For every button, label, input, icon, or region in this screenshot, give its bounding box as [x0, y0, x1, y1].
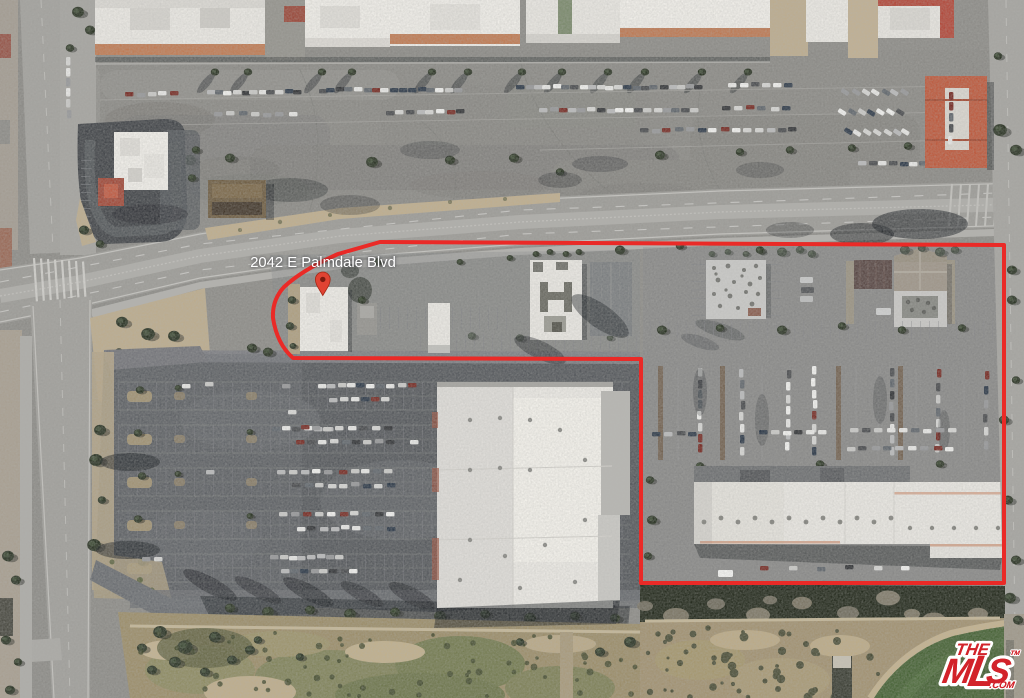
- svg-text:2042 E Palmdale Blvd: 2042 E Palmdale Blvd: [250, 255, 396, 271]
- svg-text:TM: TM: [1010, 650, 1021, 657]
- svg-text:.COM: .COM: [989, 680, 1017, 691]
